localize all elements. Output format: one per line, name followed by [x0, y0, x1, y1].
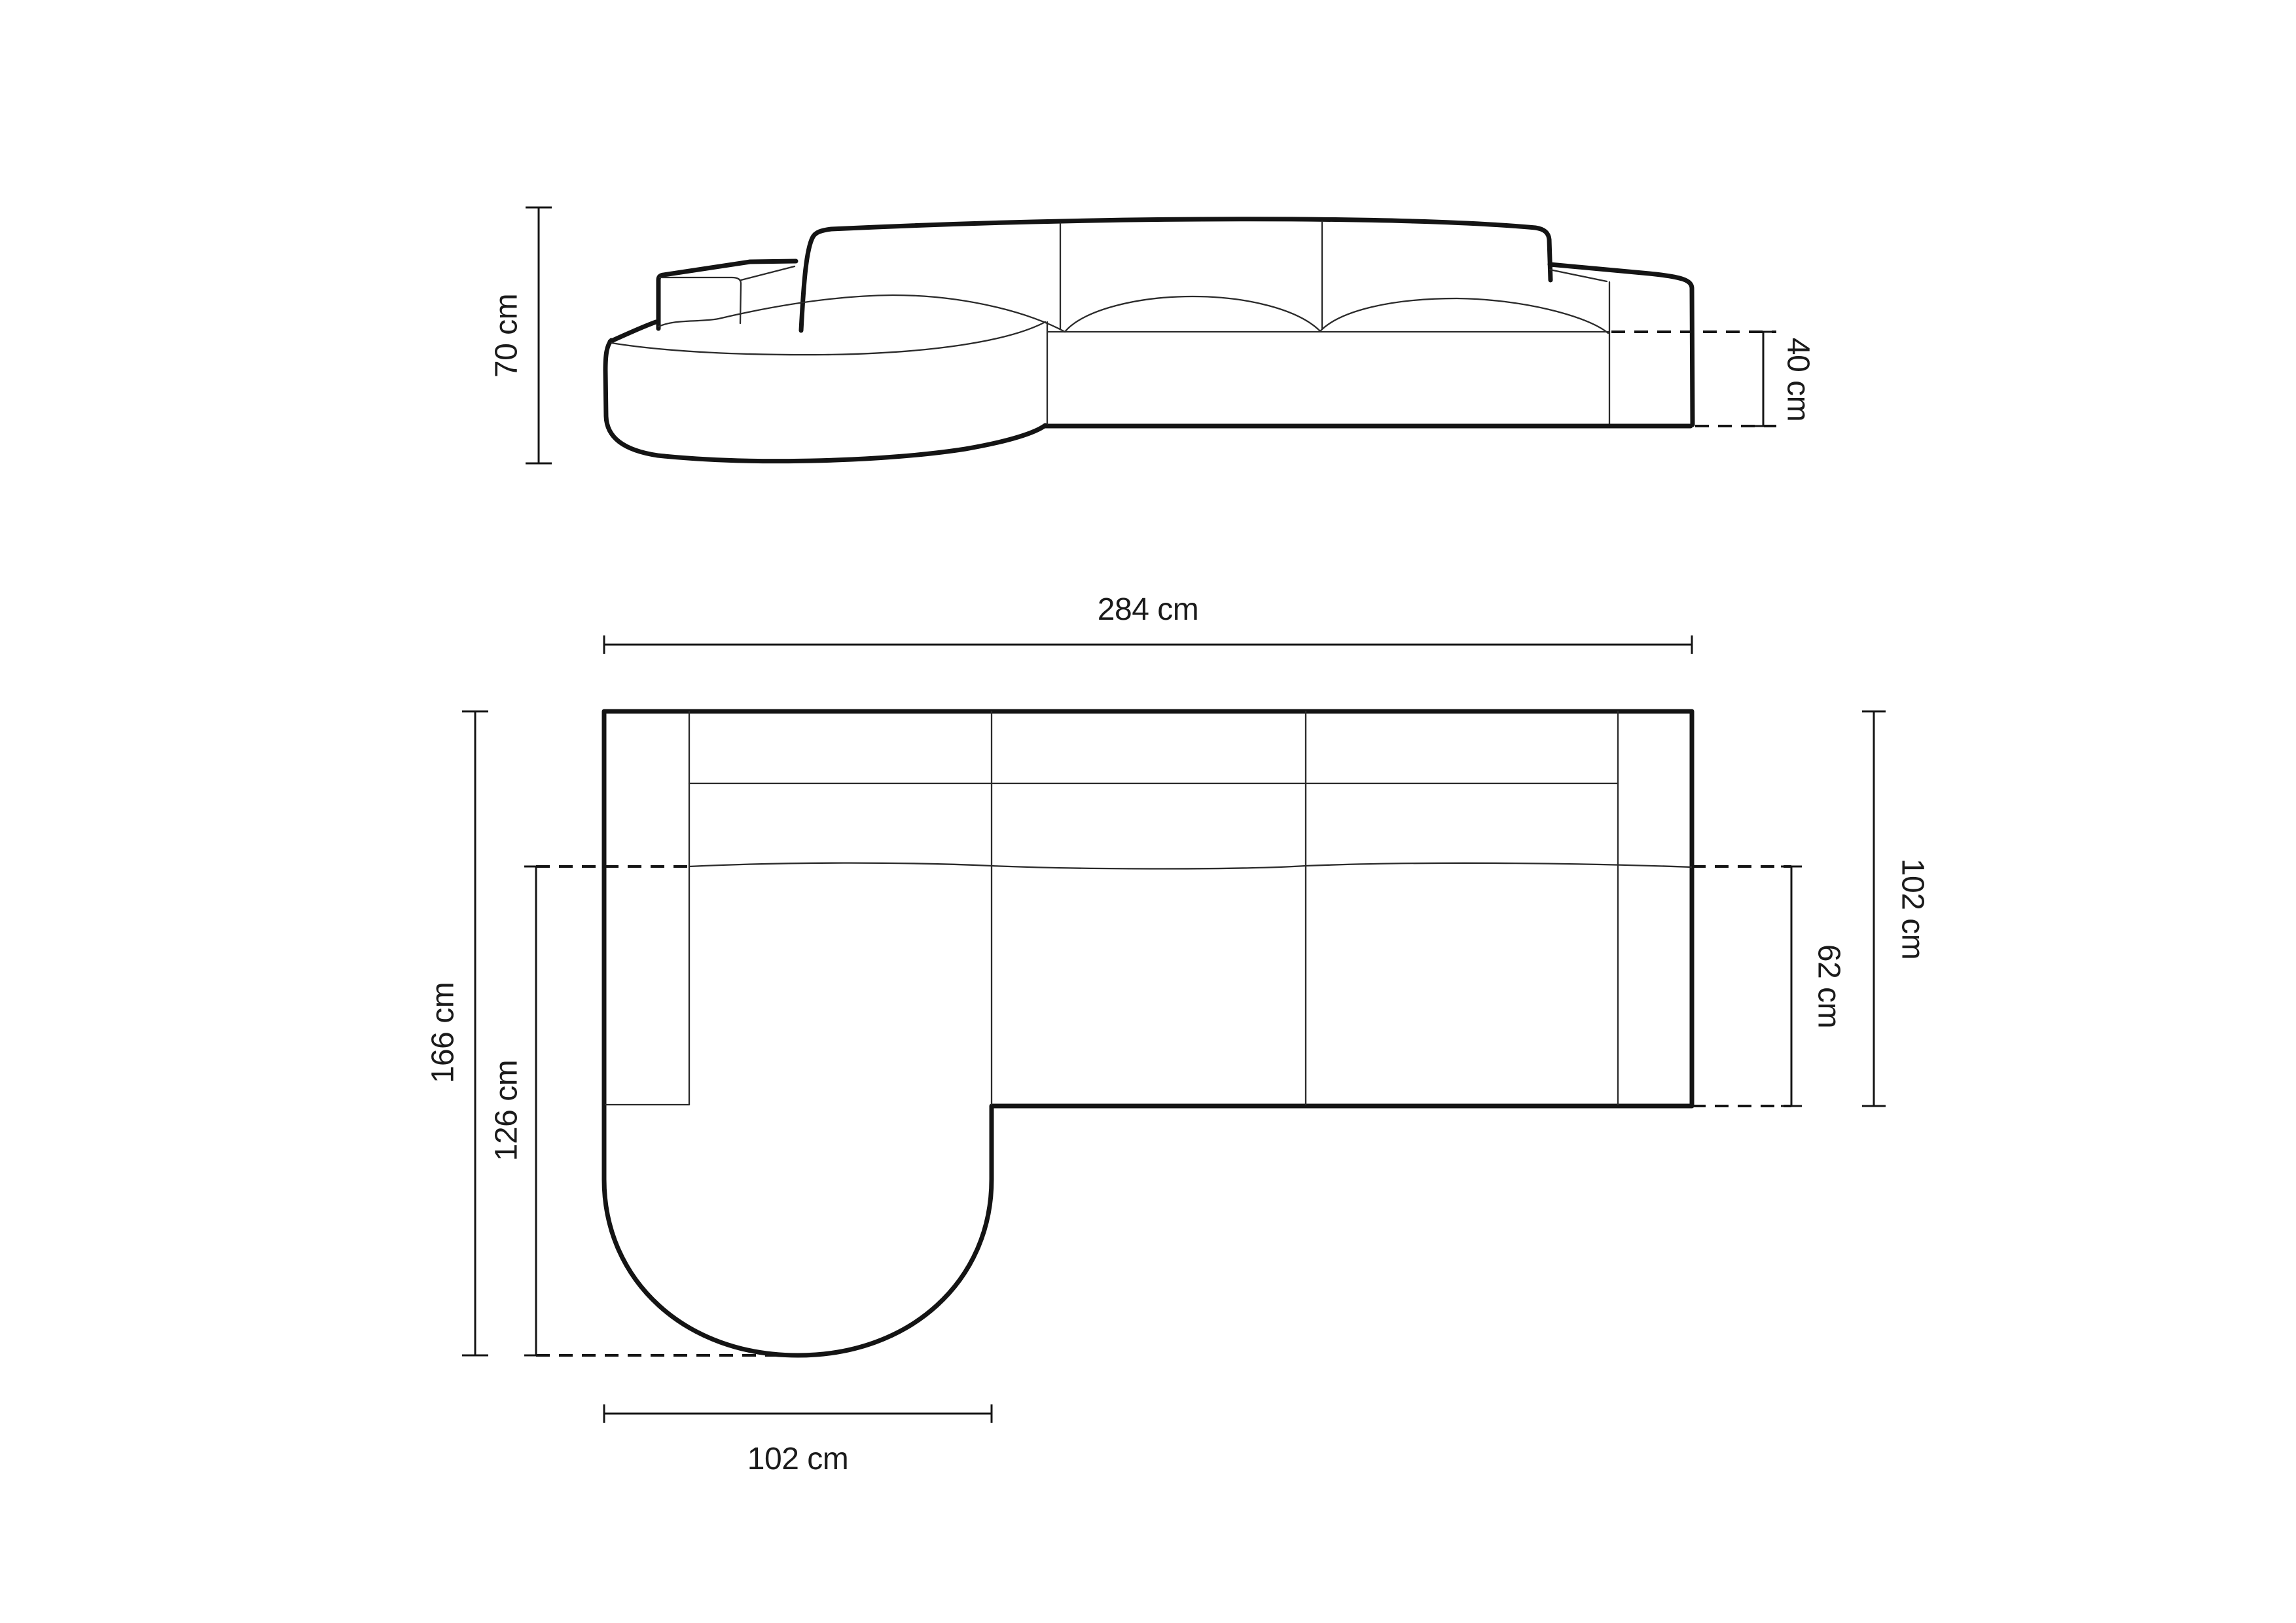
elevation-view: 70 cm 40 cm [490, 207, 1816, 463]
dim-label-total-depth: 102 cm [1895, 859, 1929, 959]
dim-seat-depth-line [1781, 866, 1802, 1106]
dim-total-width: 284 cm [604, 592, 1692, 654]
plan-outer-contour [604, 711, 1692, 1355]
dim-total-depth: 102 cm [1862, 711, 1929, 1106]
dim-chaise-front-depth: 126 cm [490, 866, 548, 1355]
plan-cushion-front-line [689, 863, 1692, 869]
cushion-middle-top [1065, 296, 1320, 332]
dim-seat-height: 40 cm [1611, 332, 1815, 426]
dim-chaise-width: 102 cm [604, 1404, 992, 1476]
left-armrest-top-face-edge [741, 266, 795, 280]
dim-label-chaise-total-depth: 166 cm [426, 982, 461, 1083]
chaise-top-left-edge [610, 322, 656, 342]
dim-label-total-height: 70 cm [490, 294, 524, 378]
dim-chaise-width-line [604, 1404, 992, 1423]
dim-seat-height-line [1754, 332, 1772, 426]
sofa-dimension-diagram: 70 cm 40 cm 284 cm [0, 0, 2296, 1623]
plan-view: 284 cm 166 cm 126 cm 102 cm 62 cm 102 cm [426, 592, 1930, 1476]
dim-total-height-line [526, 207, 552, 463]
dim-total-height: 70 cm [490, 207, 552, 463]
right-armrest-outer-edge [1550, 264, 1693, 425]
cushion-chaise-top [658, 295, 1065, 332]
cushion-right-top [1320, 298, 1608, 333]
dim-seat-depth: 62 cm [1781, 866, 1846, 1106]
chaise-body-outline [605, 340, 1045, 461]
dim-chaise-total-depth-line [462, 711, 488, 1355]
dim-total-width-line [604, 635, 1692, 654]
chaise-top-rim [611, 322, 1045, 355]
dim-label-seat-depth: 62 cm [1811, 944, 1846, 1028]
dim-chaise-total-depth: 166 cm [426, 711, 488, 1355]
dim-total-depth-line [1862, 711, 1886, 1106]
dim-chaise-front-depth-line [524, 866, 548, 1355]
dim-label-seat-height: 40 cm [1780, 338, 1815, 421]
dim-label-chaise-width: 102 cm [747, 1442, 848, 1476]
diagram-stage: 70 cm 40 cm 284 cm [0, 0, 2296, 1623]
dim-label-total-width: 284 cm [1098, 592, 1198, 627]
dim-label-chaise-front-depth: 126 cm [490, 1060, 524, 1161]
right-armrest-top-face-edge [1550, 270, 1607, 281]
backrest-outline [801, 219, 1551, 330]
